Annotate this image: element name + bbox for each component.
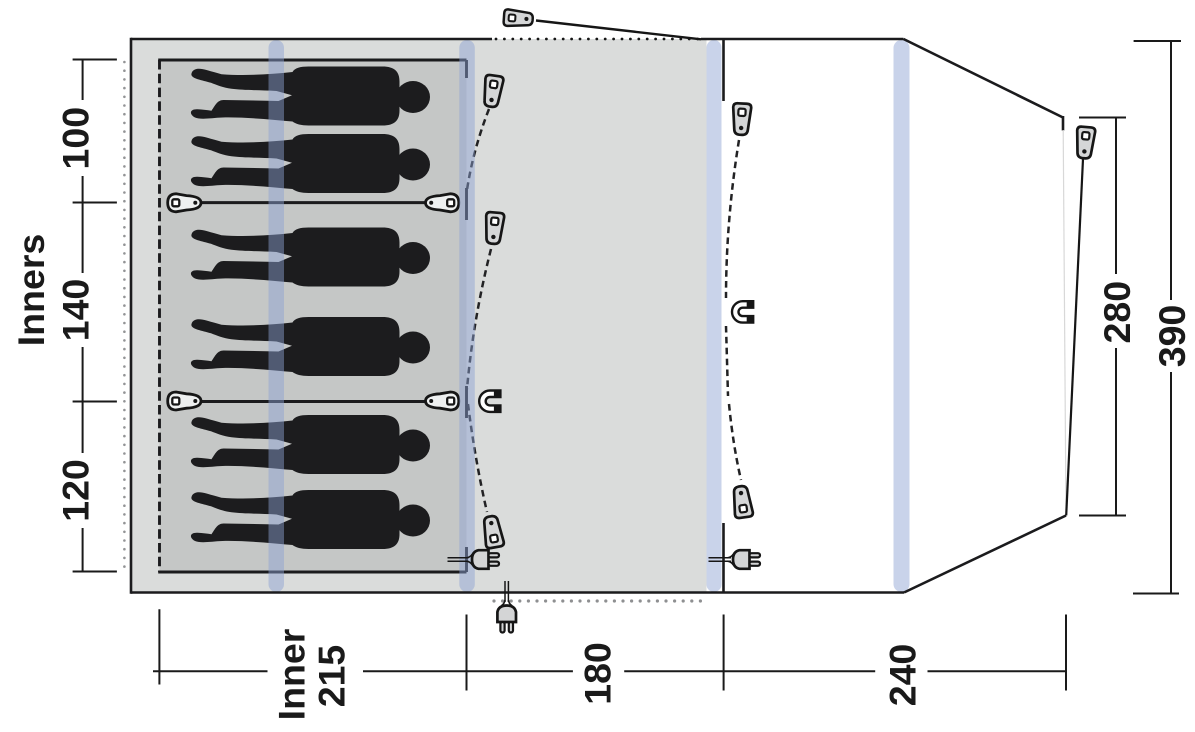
svg-text:140: 140 [55, 279, 97, 342]
svg-text:Inners: Inners [10, 234, 52, 347]
svg-text:280: 280 [1096, 281, 1138, 344]
svg-text:240: 240 [881, 644, 923, 707]
svg-text:100: 100 [55, 107, 97, 170]
svg-text:215: 215 [311, 645, 353, 708]
svg-text:Inner: Inner [271, 628, 313, 720]
svg-text:390: 390 [1151, 305, 1193, 368]
svg-text:120: 120 [55, 459, 97, 522]
svg-text:180: 180 [576, 642, 618, 705]
